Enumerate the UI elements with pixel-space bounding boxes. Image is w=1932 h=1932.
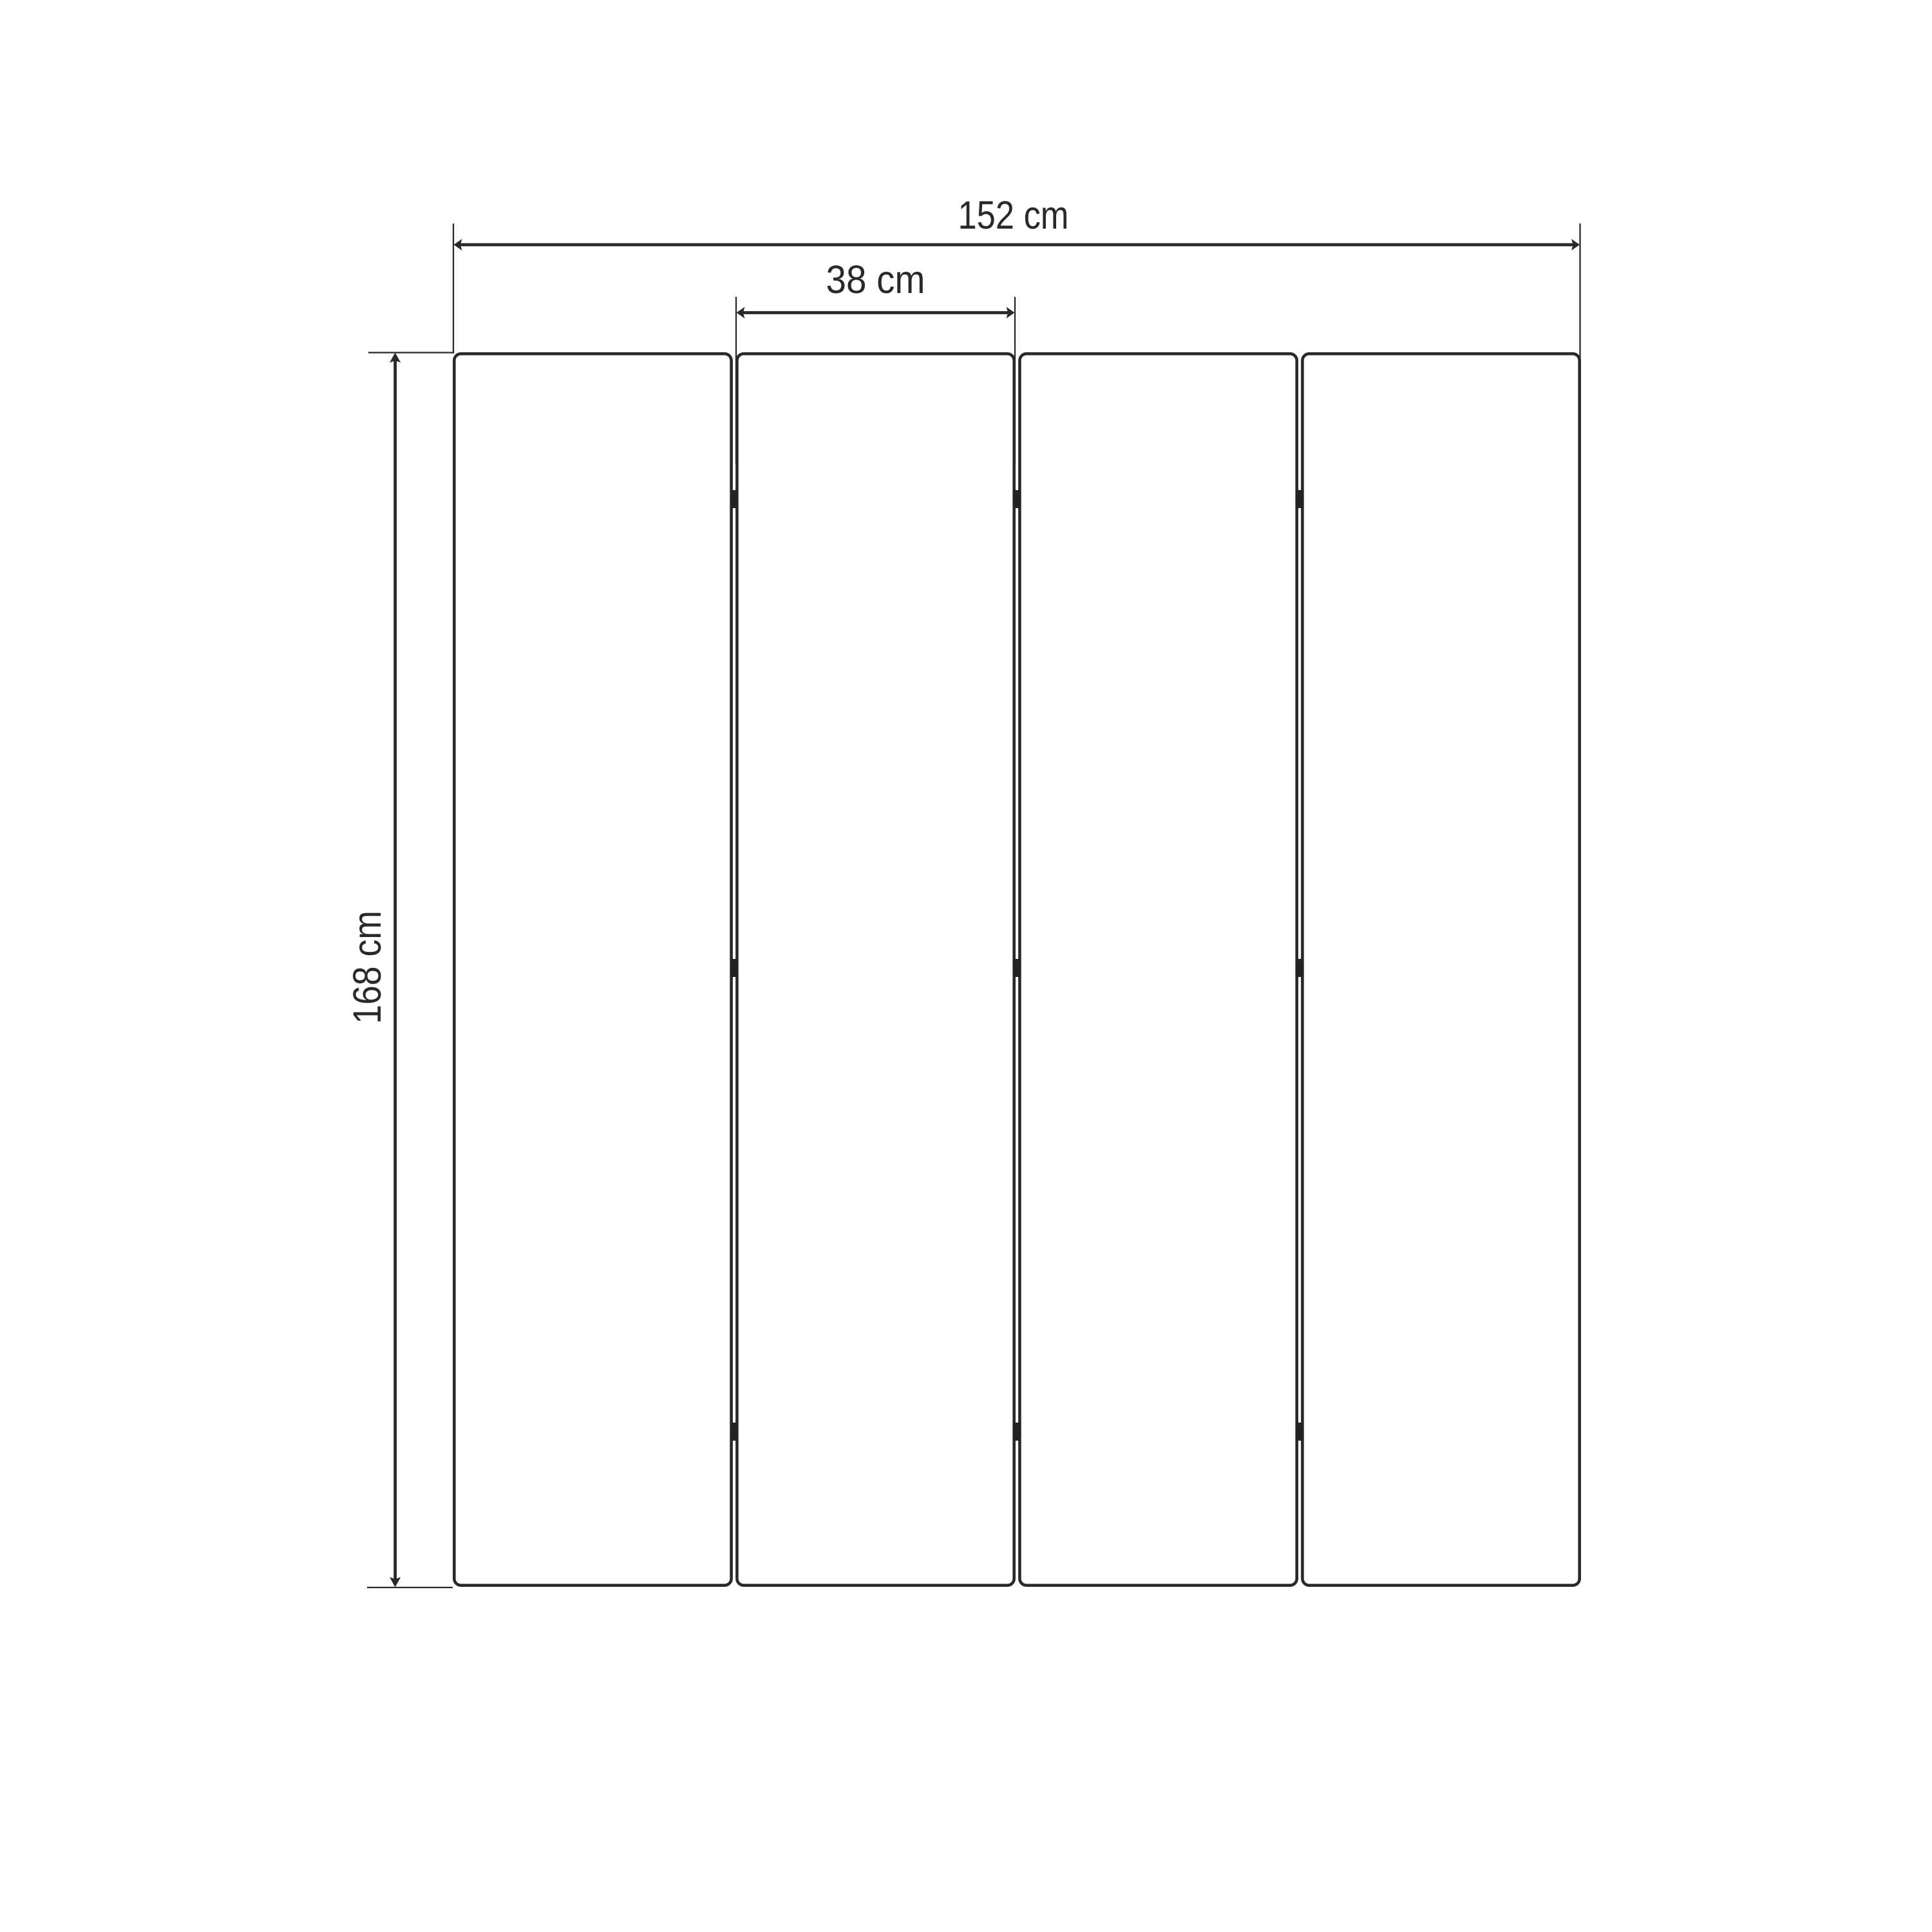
svg-text:168 cm: 168 cm bbox=[345, 911, 389, 1024]
svg-text:38 cm: 38 cm bbox=[826, 258, 925, 301]
svg-text:152 cm: 152 cm bbox=[958, 193, 1069, 237]
